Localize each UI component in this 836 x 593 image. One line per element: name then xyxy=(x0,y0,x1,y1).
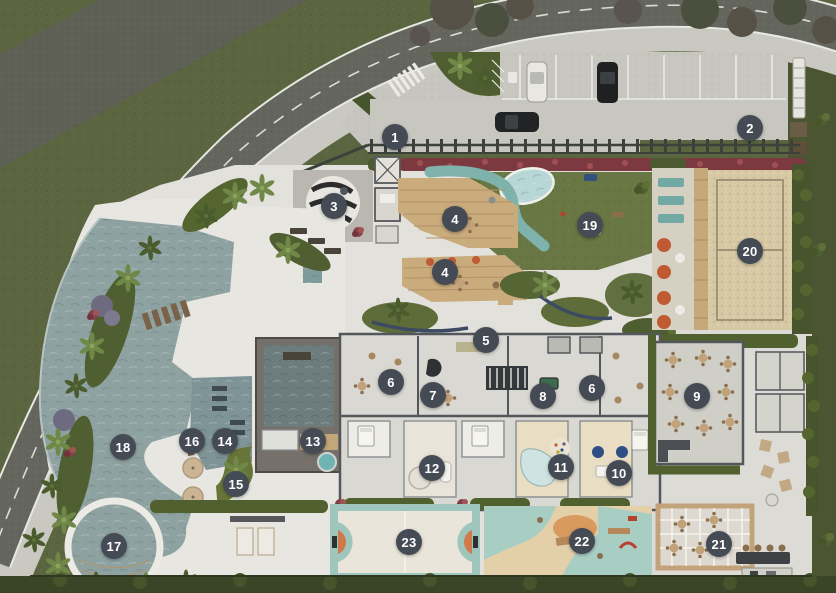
map-marker-22[interactable]: 22 xyxy=(569,528,595,554)
map-marker-12[interactable]: 12 xyxy=(419,455,445,481)
map-marker-21[interactable]: 21 xyxy=(706,531,732,557)
map-marker-label: 19 xyxy=(582,218,597,233)
map-marker-label: 8 xyxy=(539,389,547,404)
map-marker-23[interactable]: 23 xyxy=(396,529,422,555)
map-marker-label: 22 xyxy=(574,534,589,549)
map-marker-label: 21 xyxy=(711,537,726,552)
map-marker-8[interactable]: 8 xyxy=(530,383,556,409)
map-marker-16[interactable]: 16 xyxy=(179,428,205,454)
map-marker-label: 14 xyxy=(217,434,232,449)
map-marker-label: 7 xyxy=(429,388,437,403)
map-marker-label: 3 xyxy=(330,199,338,214)
site-plan-canvas: 1 2 3 4 4 5 6 6 7 8 9 10 11 12 13 14 15 … xyxy=(0,0,836,593)
map-marker-5[interactable]: 5 xyxy=(473,327,499,353)
map-marker-label: 6 xyxy=(387,375,395,390)
map-marker-label: 16 xyxy=(184,434,199,449)
map-marker-13[interactable]: 13 xyxy=(300,428,326,454)
map-marker-3[interactable]: 3 xyxy=(321,193,347,219)
map-marker-17[interactable]: 17 xyxy=(101,533,127,559)
map-marker-label: 11 xyxy=(554,460,568,475)
map-marker-label: 10 xyxy=(611,466,626,481)
map-marker-label: 13 xyxy=(305,434,320,449)
map-marker-6[interactable]: 6 xyxy=(378,369,404,395)
map-marker-15[interactable]: 15 xyxy=(223,471,249,497)
map-marker-10[interactable]: 10 xyxy=(606,460,632,486)
map-marker-20[interactable]: 20 xyxy=(737,238,763,264)
map-marker-1[interactable]: 1 xyxy=(382,124,408,150)
map-marker-18[interactable]: 18 xyxy=(110,434,136,460)
map-marker-9[interactable]: 9 xyxy=(684,383,710,409)
map-marker-label: 4 xyxy=(451,212,459,227)
map-marker-6[interactable]: 6 xyxy=(579,375,605,401)
map-marker-4[interactable]: 4 xyxy=(442,206,468,232)
map-marker-label: 2 xyxy=(746,121,754,136)
map-marker-11[interactable]: 11 xyxy=(548,454,574,480)
map-marker-19[interactable]: 19 xyxy=(577,212,603,238)
map-marker-label: 1 xyxy=(391,130,399,145)
map-marker-7[interactable]: 7 xyxy=(420,382,446,408)
map-marker-label: 6 xyxy=(588,381,596,396)
map-marker-label: 20 xyxy=(742,244,757,259)
map-marker-label: 23 xyxy=(401,535,416,550)
map-marker-2[interactable]: 2 xyxy=(737,115,763,141)
map-marker-label: 12 xyxy=(424,461,439,476)
map-marker-label: 9 xyxy=(693,389,701,404)
map-marker-14[interactable]: 14 xyxy=(212,428,238,454)
map-marker-label: 4 xyxy=(441,265,449,280)
map-marker-label: 18 xyxy=(115,440,130,455)
map-marker-label: 5 xyxy=(482,333,490,348)
map-marker-label: 17 xyxy=(106,539,121,554)
map-marker-label: 15 xyxy=(228,477,243,492)
marker-layer: 1 2 3 4 4 5 6 6 7 8 9 10 11 12 13 14 15 … xyxy=(0,0,836,593)
map-marker-4[interactable]: 4 xyxy=(432,259,458,285)
